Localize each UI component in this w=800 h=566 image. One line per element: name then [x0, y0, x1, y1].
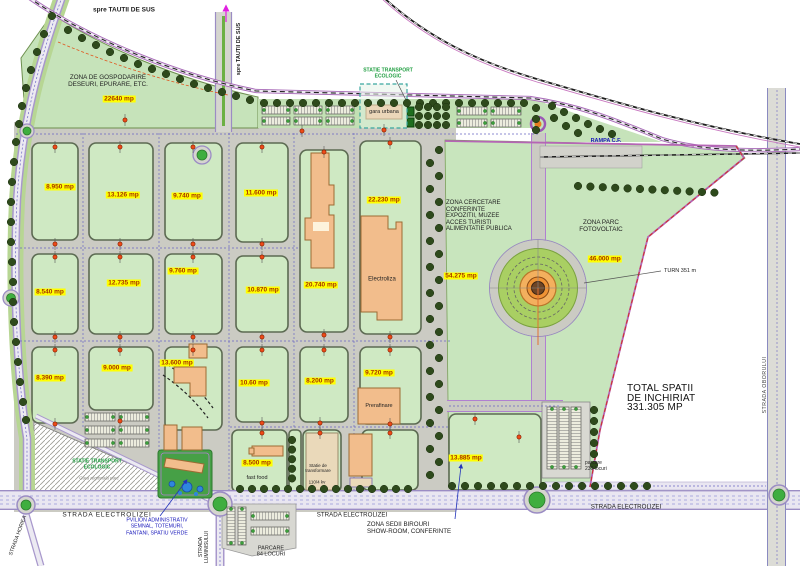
direction-tautii-road: spre TAUTII DE SUS: [236, 23, 242, 75]
zone-gospodarire-label: ZONA DE GOSPODARIREDESEURI, EPURARE, ETC…: [68, 74, 148, 88]
plot-area-54275: 54.275 mp: [444, 273, 478, 280]
statie-kv-label: 110/4 kv: [309, 479, 326, 484]
plot-area-8540: 8.540 mp: [35, 289, 66, 296]
plot-area-22640: 22640 mp: [103, 96, 136, 103]
statie-transformare-label: Statie detransformare: [305, 464, 331, 474]
street-electrolizei-right: STRADA ELECTROLIZEI: [591, 503, 662, 510]
plot-area-12735: 12.735 mp: [107, 280, 141, 287]
gara-urbana-label: gara urbana: [369, 109, 399, 115]
total-spaces-label: TOTAL SPATIIDE INCHIRIAT331.305 MP: [627, 384, 695, 413]
plot-area-22230: 22.230 mp: [367, 197, 401, 204]
statie-transport-eco-top: STATIE TRANSPORTECOLOGIC: [363, 68, 413, 80]
site-plan: spre TAUTII DE SUS spre TAUTII DE SUS ZO…: [0, 0, 800, 566]
street-luminisului: STRADALUMINISULUI: [199, 531, 211, 563]
plot-area-9720: 9.720 mp: [364, 370, 395, 377]
plot-area-10600: 10.60 mp: [239, 380, 270, 387]
gara-note-label: Gara regionala parc: [79, 475, 119, 480]
statie-transport-eco-bottom: STATIE TRANSPORTECOLOGIC: [72, 459, 122, 471]
prerafinare-label: Prerafinare: [365, 403, 392, 409]
plot-area-8500: 8.500 mp: [242, 460, 273, 467]
zone-fotovoltaic-label: ZONA PARCFOTOVOLTAIC: [579, 219, 622, 233]
plot-area-8200: 8.200 mp: [305, 378, 336, 385]
street-electrolizei-mid: STRADA ELECTROLIZEI: [317, 511, 388, 518]
plot-area-20740: 20.740 mp: [304, 282, 338, 289]
zone-sedii-label: ZONA SEDII BIROURISHOW-ROOM, CONFERINTE: [367, 521, 451, 536]
plot-area-9760: 9.760 mp: [168, 268, 199, 275]
zone-cercetare-label: ZONA CERCETARECONFERINTEEXPOZITII, MUZEE…: [446, 200, 512, 233]
plot-area-13126: 13.126 mp: [106, 192, 140, 199]
turn-label: TURN 351 m: [664, 268, 696, 274]
parking-84-label: PARCARE84 LOCURI: [257, 546, 285, 559]
fast-food-label: fast food: [246, 475, 267, 481]
pavilion-label: PVILION ADMINISTRATIVSEMNAL, TOTEMURI,FA…: [126, 518, 188, 537]
plot-area-46000: 46.000 mp: [588, 256, 622, 263]
electroliza-label: Electroliza: [368, 277, 396, 284]
plot-area-13885: 13.885 mp: [449, 455, 483, 462]
rampa-cf-label: RAMPA C.F.: [591, 138, 622, 144]
plot-area-8390: 8.390 mp: [35, 375, 66, 382]
street-oborului: STRADA OBORULUI: [763, 357, 769, 414]
plot-area-9000: 9.000 mp: [102, 365, 133, 372]
plot-area-9740: 9.740 mp: [172, 193, 203, 200]
plot-area-11600: 11.600 mp: [244, 190, 278, 197]
plot-area-8950: 8.950 mp: [45, 184, 76, 191]
direction-tautii-top: spre TAUTII DE SUS: [93, 6, 155, 13]
admin-pavilion-zone: [158, 450, 212, 498]
plot-area-10870: 10.870 mp: [246, 287, 280, 294]
parking-230-label: parcare230 locuri: [585, 461, 607, 472]
plot-area-13600: 13.600 mp: [160, 360, 194, 367]
